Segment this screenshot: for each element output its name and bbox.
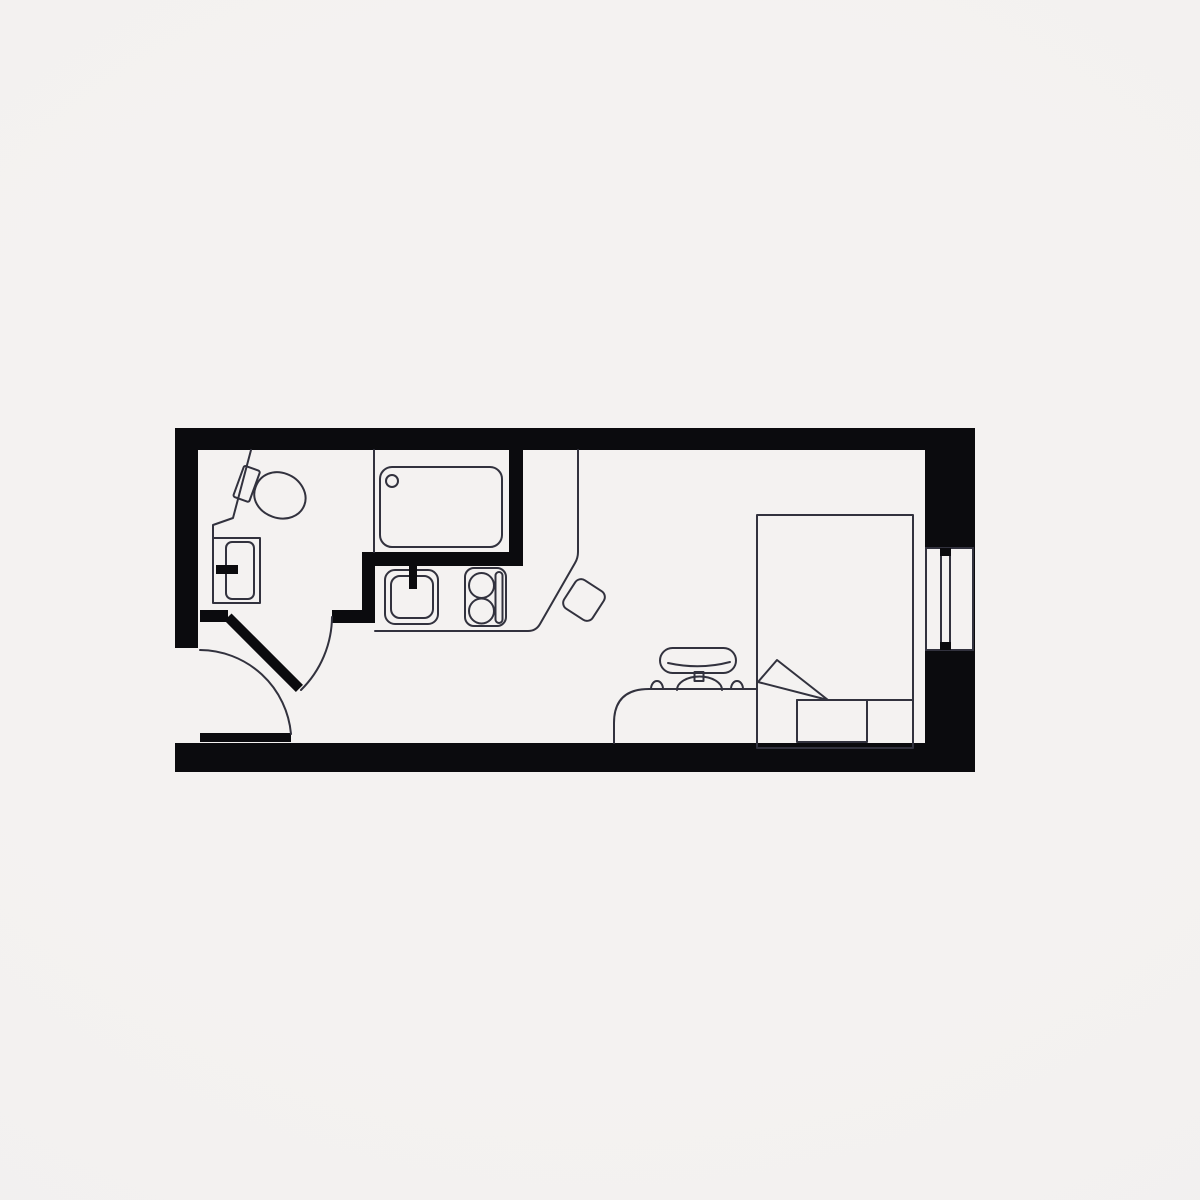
studio-apartment-floor-plan — [0, 0, 1200, 1200]
entry-door-leaf — [200, 733, 291, 742]
bathroom-door-stub-left — [200, 610, 228, 622]
window-cap-top — [940, 548, 951, 556]
wall-top — [175, 428, 975, 450]
kitchen-faucet — [409, 564, 417, 589]
bathroom-wall-horizontal — [362, 552, 523, 566]
window-cap-bottom — [940, 642, 951, 650]
wall-left — [175, 428, 198, 648]
basin-faucet — [216, 565, 238, 574]
page — [0, 0, 1200, 1200]
bathroom-wall-vertical-right — [509, 448, 523, 558]
bathroom-door-stub-right — [332, 610, 375, 623]
